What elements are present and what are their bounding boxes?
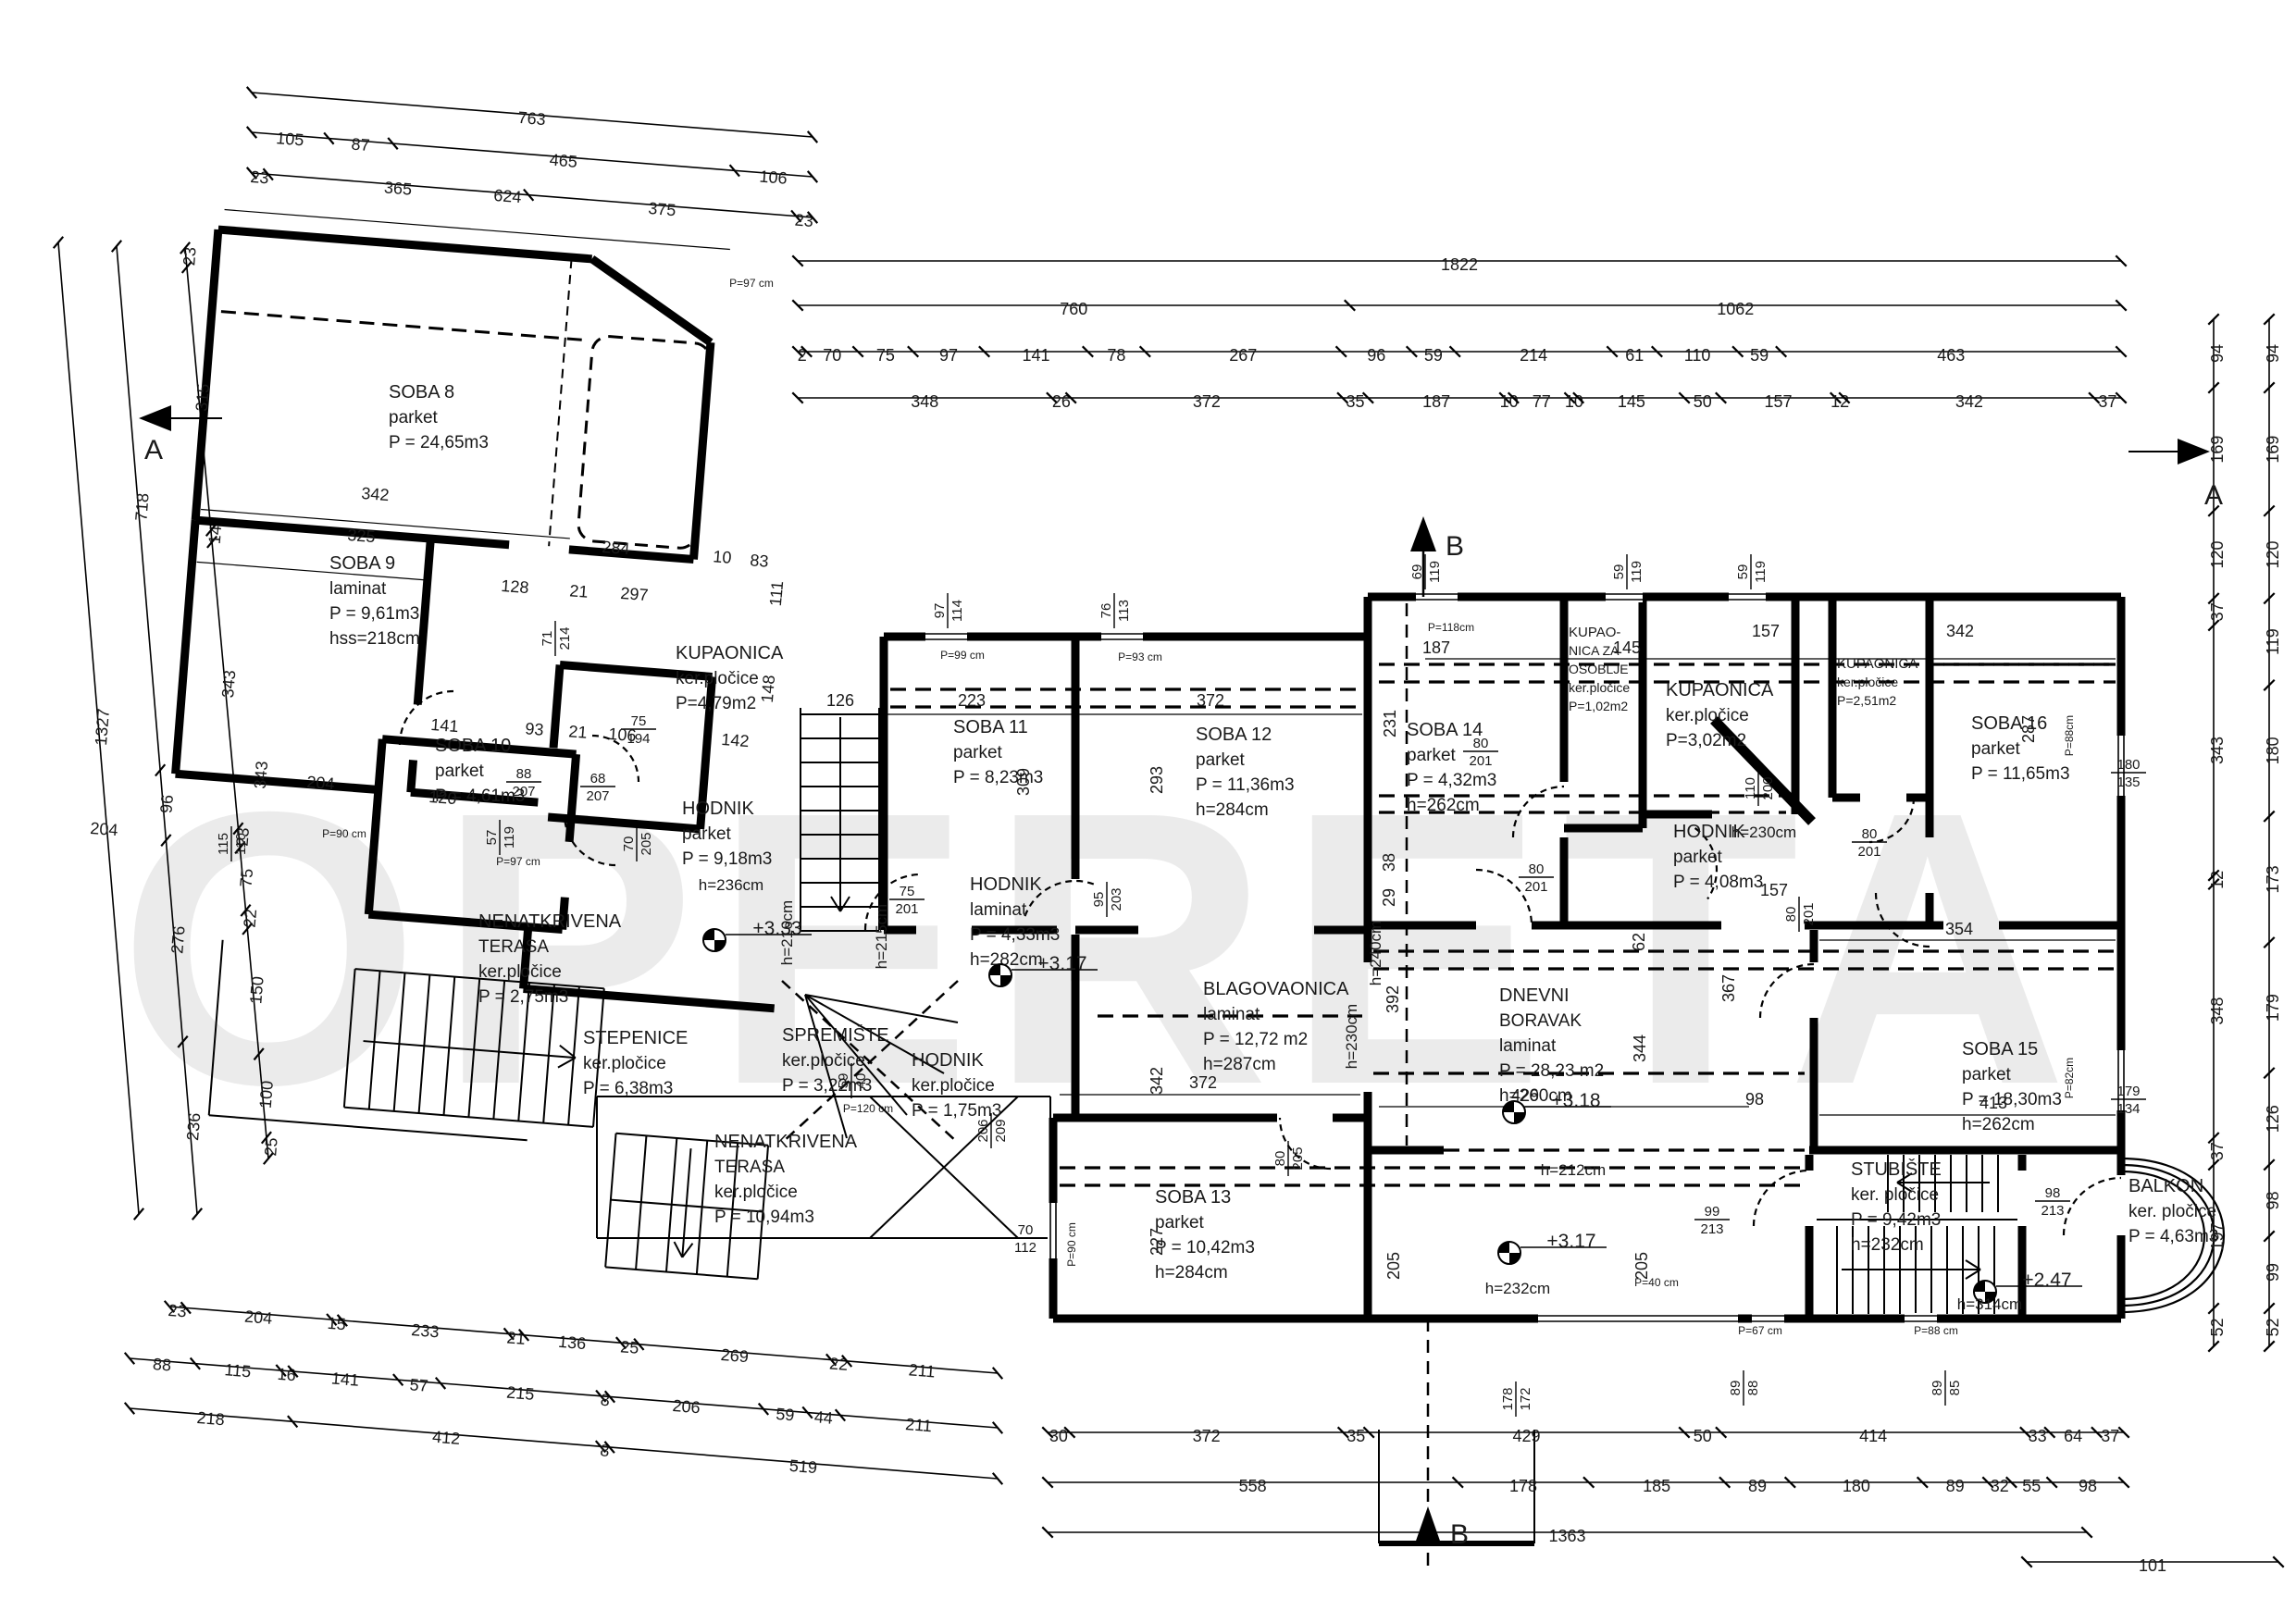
dimension-label: 1363 (1548, 1527, 1585, 1545)
dimension-label: 35 (1347, 1427, 1365, 1445)
dimension-label: 10 (1500, 392, 1519, 411)
fraction-denominator: 201 (895, 901, 918, 917)
interior-dimension: 38 (1380, 853, 1398, 872)
height-label: h=236cm (699, 876, 763, 894)
room-label-line: P = 6,38m3 (583, 1079, 673, 1098)
wall (605, 1267, 757, 1279)
room-label-line: P = 12,72 m2 (1203, 1030, 1308, 1049)
height-label: h=216cm (778, 900, 796, 965)
interior-dimension: 93 (525, 719, 545, 739)
room-label-line: P = 28,23 m2 (1499, 1061, 1604, 1081)
room-label-line: laminat (1203, 1005, 1260, 1024)
level-wedge (1974, 1281, 1985, 1292)
room-label-line: P=4,79m2 (676, 694, 756, 713)
dimension-label: 204 (243, 1307, 273, 1328)
dimension-label: 32 (1991, 1477, 2009, 1495)
fraction-numerator: 110 (1743, 777, 1758, 799)
dimension-label: 429 (1513, 1427, 1541, 1445)
interior-dimension: 624 (493, 186, 523, 206)
interior-dimension: 62 (1630, 933, 1648, 951)
door-arc (1754, 1171, 1809, 1226)
dimension-label: 57 (409, 1375, 429, 1395)
room-label-line: laminat (329, 579, 387, 599)
interior-dimension: 429 (1511, 1086, 1539, 1105)
dimension-label: 88 (152, 1355, 172, 1375)
window-gap (1606, 591, 1643, 602)
room-label-line: KUPAONICA (1666, 680, 1774, 700)
room-label-line: SOBA 10 (435, 736, 511, 756)
dimension-label: 64 (2064, 1427, 2082, 1445)
fraction-label: 69119 (1409, 554, 1443, 589)
window-size-label: P=97 cm (496, 855, 540, 868)
room-label: STUBIŠTEker. pločiceP = 9,42m3h=232cm (1851, 1158, 1942, 1255)
dimension-label: 169 (2208, 436, 2227, 464)
dimension-label: 348 (911, 392, 938, 411)
fraction-numerator: 98 (2045, 1185, 2061, 1201)
dimension-label: 77 (1533, 392, 1551, 411)
fraction-denominator: 214 (557, 626, 573, 650)
interior-dimension: 342 (1148, 1067, 1166, 1095)
fraction-denominator: 119 (1427, 561, 1443, 583)
dimension-label: 59 (1424, 346, 1443, 365)
room-label-line: P = 4,33m3 (970, 925, 1060, 945)
interior-dimension: 21 (569, 581, 590, 601)
room-label-line: P=3,02m2 (1666, 731, 1746, 750)
interior-dimension: 343 (251, 761, 272, 790)
dimension-label: 87 (351, 135, 371, 155)
dimension-line (130, 1358, 998, 1428)
dimension-label: 718 (131, 492, 152, 522)
window-size-label: P=67 cm (1738, 1324, 1782, 1337)
fraction-numerator: 178 (1500, 1387, 1516, 1410)
room-label-line: KUPAONICA (676, 643, 784, 663)
fraction-denominator: 114 (949, 600, 965, 622)
dimension-label: 180 (1843, 1477, 1870, 1495)
room-label-line: P = 9,18m3 (682, 849, 772, 869)
dimension-label: 22 (241, 909, 261, 929)
room-label-line: SOBA 15 (1962, 1039, 2038, 1059)
fraction-denominator: 207 (586, 788, 609, 804)
interior-dimension: 392 (1384, 985, 1402, 1013)
door-arc (2064, 1178, 2121, 1235)
dimension-label: 760 (1060, 300, 1087, 318)
fraction-denominator: 201 (1524, 879, 1547, 895)
interior-dimension: 342 (361, 484, 391, 504)
dimension-label: 365 (383, 178, 413, 198)
fraction-denominator: 207 (512, 784, 535, 799)
interior-dimension: 204 (306, 773, 336, 793)
window-size-label: P=90 cm (1065, 1222, 1078, 1267)
fraction-denominator: 40 (853, 1073, 869, 1089)
dimension-label: 558 (1239, 1477, 1267, 1495)
fraction-numerator: 89 (1728, 1381, 1744, 1396)
dimension-label: 375 (648, 199, 677, 219)
fraction-denominator: 213 (2041, 1203, 2064, 1219)
room-label-line: parket (1196, 750, 1246, 770)
room-label-line: parket (435, 762, 485, 781)
ceiling-dashed (221, 312, 586, 341)
interior-dimension: 157 (1760, 881, 1788, 899)
interior-dimension: 284 (602, 538, 631, 558)
window-size-label: P=120 cm (843, 1102, 893, 1115)
dimension-label: 55 (2022, 1477, 2041, 1495)
dimension-label: 120 (2208, 540, 2227, 568)
interior-dimension: 223 (958, 691, 986, 710)
dimension-label: 97 (939, 346, 958, 365)
window-gap (1538, 1313, 1738, 1324)
dimension-label: 169 (2264, 436, 2282, 464)
fraction-denominator: 110 (233, 833, 249, 855)
wall (195, 229, 218, 520)
dimension-label: 52 (2208, 1319, 2227, 1337)
window-size-label: P=97 cm (729, 277, 774, 290)
dimension-label: 179 (2264, 994, 2282, 1022)
room-label-line: P = 10,94m3 (714, 1208, 814, 1227)
fraction-denominator: 88 (1745, 1381, 1761, 1396)
dimension-line (252, 132, 813, 177)
dimension-label: 180 (2264, 737, 2282, 764)
fraction-numerator: 70 (1018, 1222, 1034, 1238)
room-label-line: h=287cm (1203, 1055, 1276, 1074)
level-value: +3.17 (1037, 953, 1086, 974)
dimension-label: 414 (1859, 1427, 1887, 1445)
fraction-denominator: 200 (1760, 776, 1776, 799)
interior-dimension: 354 (1945, 920, 1973, 938)
room-label-line: h=262cm (1407, 796, 1480, 815)
interior-dimension: 205 (1384, 1252, 1403, 1280)
fraction-denominator: 112 (1014, 1240, 1036, 1256)
room-label-line: hss=218cm (329, 629, 420, 649)
dimension-label: 101 (2139, 1556, 2166, 1575)
fraction-denominator: 119 (1753, 561, 1769, 583)
section-label-b: B (1446, 531, 1464, 562)
room-label-line: P = 1,75m3 (912, 1101, 1001, 1121)
fraction-numerator: 75 (900, 884, 915, 899)
room-label-line: TERASA (478, 937, 549, 957)
dimension-label: 157 (1764, 392, 1792, 411)
window-gap (1729, 591, 1766, 602)
dimension-label: 276 (168, 925, 188, 955)
dimension-label: 30 (1049, 1427, 1068, 1445)
wall (411, 760, 414, 792)
room-label-line: ker. pločice (1851, 1185, 1939, 1205)
dimension-label: 233 (411, 1320, 441, 1341)
room-label-line: ker.pločice (478, 962, 562, 982)
dimension-label: 89 (1946, 1477, 1965, 1495)
fraction-denominator: 119 (1629, 561, 1644, 583)
dimension-label: 59 (776, 1405, 796, 1425)
room-label-line: NICA ZA (1569, 643, 1620, 658)
fraction-denominator: 172 (1518, 1387, 1533, 1410)
dimension-line (130, 1408, 998, 1479)
room-label-line: NENATKRIVENA (714, 1132, 858, 1152)
room-label-line: SOBA 11 (953, 717, 1028, 737)
room-label-line: parket (1673, 848, 1723, 867)
interior-dimension: 325 (347, 526, 377, 546)
room-label-line: DNEVNI (1499, 985, 1570, 1006)
window-gap (1752, 1313, 1784, 1324)
interior-dimension: 145 (1613, 638, 1641, 657)
dimension-label: 115 (224, 1360, 252, 1381)
fraction-label: 178172 (1500, 1381, 1533, 1417)
fraction-label: 76113 (1098, 593, 1132, 628)
dimension-label: 89 (1748, 1477, 1767, 1495)
room-label-line: P = 10,42m3 (1155, 1238, 1255, 1258)
fraction-label: 98213 (2035, 1185, 2070, 1219)
fraction-label: 59119 (1735, 554, 1769, 589)
dimension-label: 236 (183, 1112, 204, 1142)
interior-dimension: 205 (1632, 1252, 1651, 1280)
dimension-label: 126 (2264, 1105, 2282, 1133)
dimension-label: 75 (237, 868, 257, 888)
dimension-label: 465 (549, 151, 578, 171)
interior-dimension: 293 (1148, 766, 1166, 794)
room-label-line: ker.pločice (1837, 675, 1898, 689)
dimension-label: 52 (2264, 1319, 2282, 1337)
dimension-label: 105 (276, 129, 305, 149)
dimension-label: 78 (1107, 346, 1125, 365)
room-label-line: ker.pločice (1569, 680, 1630, 695)
interior-dimension: 231 (1381, 710, 1399, 737)
dimension-label: 372 (1193, 392, 1221, 411)
room-label-line: P = 4,32m3 (1407, 771, 1496, 790)
dimension-label: 50 (1694, 392, 1712, 411)
fraction-numerator: 70 (621, 836, 637, 852)
interior-dimension: 342 (1946, 622, 1974, 640)
fraction-numerator: 59 (1611, 564, 1627, 580)
room-label-line: HODNIK (970, 874, 1042, 895)
window-gap (1101, 631, 1143, 642)
room-label-line: STEPENICE (583, 1028, 688, 1048)
room-label-line: parket (1407, 746, 1457, 765)
fraction-denominator: 85 (1947, 1381, 1963, 1396)
interior-dimension: 106 (608, 725, 638, 745)
interior-dimension: 344 (1631, 1035, 1649, 1062)
fraction-numerator: 59 (1735, 564, 1751, 580)
room-label-line: TERASA (714, 1158, 785, 1177)
dimension-label: 98 (2264, 1191, 2282, 1209)
dimension-label: 106 (759, 167, 788, 187)
window-size-label: P=99 cm (940, 649, 985, 662)
dimension-label: 96 (156, 794, 177, 814)
dimension-label: 141 (1022, 346, 1049, 365)
height-label: h=230cm (1731, 824, 1796, 841)
fraction-label: 59119 (1611, 554, 1644, 589)
section-arrow (1415, 1506, 1441, 1543)
dimension-label: 141 (330, 1369, 360, 1389)
wall (586, 259, 716, 342)
dimension-label: 37 (2208, 1142, 2227, 1160)
level-marker: +3.17 (1498, 1231, 1607, 1264)
dimension-label: 211 (905, 1415, 933, 1435)
fraction-label: 8985 (1930, 1370, 1963, 1406)
room-label-line: SOBA 9 (329, 553, 395, 574)
interior-dimension: 157 (1752, 622, 1780, 640)
section-label-a: A (2204, 480, 2223, 511)
room-label-line: BLAGOVAONICA (1203, 979, 1349, 999)
interior-dimension: 120 (428, 787, 458, 808)
interior-dimension: 227 (1148, 1228, 1166, 1256)
floor-plan-canvas: OPERETA 76310587465106233653752313272362… (0, 0, 2296, 1623)
dimension-label: 33 (2029, 1427, 2047, 1445)
fraction-numerator: 95 (1091, 892, 1107, 908)
dimension-label: 348 (2208, 997, 2227, 1025)
dimension-label: 37 (2101, 1427, 2119, 1445)
section-label-a: A (144, 435, 163, 465)
interior-dimension: 309 (1014, 768, 1033, 796)
fraction-denominator: 119 (502, 826, 517, 849)
dimension-label: 218 (196, 1408, 226, 1429)
level-value: +3.17 (1546, 1231, 1595, 1252)
wall (569, 550, 694, 560)
window-size-label: P=88 cm (1914, 1324, 1958, 1337)
room-label-line: ker. pločice (2128, 1202, 2216, 1221)
fraction-denominator: 113 (1116, 600, 1132, 622)
level-wedge (1498, 1242, 1509, 1253)
dimension-label: 12 (1831, 392, 1849, 411)
interior-dimension: 29 (1380, 888, 1398, 907)
dimension-label: 119 (2264, 628, 2282, 655)
room-label-line: laminat (1499, 1036, 1557, 1056)
fraction-numerator: 206 (975, 1119, 991, 1142)
dimension-label: 173 (2264, 865, 2282, 893)
room-label-line: parket (682, 824, 732, 844)
dimension-label: 206 (672, 1396, 701, 1417)
room-label-line: P=1,02m2 (1569, 699, 1628, 713)
dimension-label: 23 (250, 167, 270, 188)
fraction-numerator: 180 (2116, 757, 2140, 773)
room-label-line: BALKON (2128, 1176, 2203, 1196)
interior-dimension: 372 (1189, 1073, 1217, 1092)
fraction-numerator: 80 (1783, 907, 1799, 923)
window-size-label: P=82cm (2063, 1058, 2076, 1098)
dimension-label: 100 (256, 1080, 277, 1109)
fraction-denominator: 205 (639, 832, 654, 855)
room-label-line: P = 24,65m3 (389, 433, 489, 452)
fraction-denominator: 134 (2116, 1101, 2140, 1117)
fraction-label: 71214 (540, 621, 573, 656)
room-label-line: ker.pločice (676, 669, 759, 688)
room-label-line: P = 4,08m3 (1673, 873, 1763, 892)
dimension-label: 35 (1347, 392, 1365, 411)
interior-dimension: 372 (1197, 691, 1224, 710)
dimension-label: 267 (1229, 346, 1257, 365)
fraction-denominator: 135 (2116, 774, 2140, 790)
room-label-line: h=262cm (1962, 1115, 2035, 1134)
window-gap (1905, 1313, 1937, 1324)
dimension-label: 136 (557, 1332, 587, 1353)
dimension-label: 37 (2208, 602, 2227, 621)
room-label-line: parket (389, 408, 439, 427)
room-label-line: SOBA 12 (1196, 725, 1272, 745)
room-label: BALKONker. pločiceP = 4,63m3 (2128, 1176, 2218, 1246)
fraction-denominator: 213 (1700, 1221, 1723, 1237)
height-label: h=240cm (1367, 921, 1384, 985)
room-label-line: HODNIK (912, 1050, 984, 1071)
room-label-line: P=2,51m2 (1837, 693, 1896, 708)
room-label: NENATKRIVENATERASAker.pločiceP = 10,94m3 (714, 1132, 858, 1227)
dimension-label: 2 (798, 346, 807, 365)
fraction-numerator: 68 (590, 771, 606, 787)
dimension-label: 372 (1193, 1427, 1221, 1445)
interior-dimension: 128 (501, 576, 530, 597)
fraction-denominator: 201 (1857, 844, 1880, 860)
dimension-label: 343 (218, 669, 239, 699)
interior-dimension: 21 (568, 722, 589, 742)
fraction-numerator: 80 (1862, 826, 1878, 842)
dimension-label: 94 (2264, 344, 2282, 363)
dimension-label: 70 (823, 346, 841, 365)
fraction-denominator: 201 (1801, 902, 1817, 925)
dimension-label: 269 (720, 1345, 750, 1366)
dimension-label: 98 (2079, 1477, 2097, 1495)
dimension-label: 8 (600, 1391, 611, 1410)
height-label: h=232cm (1485, 1280, 1550, 1297)
dimension-label: 187 (1422, 392, 1450, 411)
dimension-label: 37 (2098, 392, 2116, 411)
room-label-line: laminat (970, 900, 1027, 920)
room-label-line: parket (953, 743, 1003, 762)
room-label-line: HODNIK (682, 799, 754, 819)
fraction-numerator: 76 (1098, 603, 1114, 619)
room-label-line: P = 9,42m3 (1851, 1210, 1941, 1230)
interior-dimension: 142 (721, 730, 751, 750)
window-size-label: P=88cm (2063, 715, 2076, 756)
room-label: SOBA 8parketP = 24,65m3 (389, 382, 489, 452)
dimension-label: 21 (506, 1328, 527, 1348)
dimension-label: 1062 (1717, 300, 1754, 318)
room-label-line: SOBA 13 (1155, 1187, 1231, 1208)
window-size-label: P=93 cm (1118, 650, 1162, 663)
height-label: h=215cm (873, 904, 890, 969)
dimension-label: 412 (431, 1428, 461, 1448)
fraction-numerator: 88 (516, 766, 532, 782)
interior-dimension: 297 (620, 584, 650, 604)
wall (673, 1242, 683, 1258)
dimension-label: 22 (828, 1354, 849, 1374)
dimension-label: 150 (246, 975, 267, 1005)
room-label-line: ker.pločice (782, 1051, 865, 1071)
dimension-label: 763 (517, 108, 547, 129)
room-label-line: P = 2,75m3 (478, 987, 568, 1007)
dimension-label: 8 (600, 1441, 611, 1460)
fraction-numerator: 80 (1473, 736, 1489, 751)
room-label-line: ker.pločice (714, 1183, 798, 1202)
window-size-label: P=90 cm (322, 827, 366, 840)
dimension-label: 463 (1937, 346, 1965, 365)
dimension-label: 99 (2264, 1263, 2282, 1282)
room-label-line: P = 18,30m3 (1962, 1090, 2062, 1109)
interior-dimension: 126 (826, 691, 854, 710)
room-label-line: ker.pločice (1666, 706, 1749, 725)
interior-dimension: 204 (90, 819, 119, 839)
room-label-line: P = 11,65m3 (1971, 764, 2070, 784)
dimension-label: 1327 (92, 708, 113, 746)
room-divider-dashed (549, 259, 571, 546)
section-label-b: B (1450, 1519, 1469, 1550)
dimension-label: 59 (1750, 346, 1769, 365)
interior-dimension: 141 (430, 715, 460, 736)
room-label-line: STUBIŠTE (1851, 1158, 1942, 1180)
interior-dimension: 111 (766, 580, 787, 607)
room-label-line: h=232cm (1851, 1235, 1924, 1255)
fraction-numerator: 59 (836, 1073, 851, 1089)
dimension-label: 75 (876, 346, 895, 365)
fraction-numerator: 99 (1705, 1204, 1720, 1220)
dimension-label: 44 (813, 1407, 834, 1428)
dimension-label: 50 (1694, 1427, 1712, 1445)
room-label-line: P = 4,63m3 (2128, 1227, 2218, 1246)
